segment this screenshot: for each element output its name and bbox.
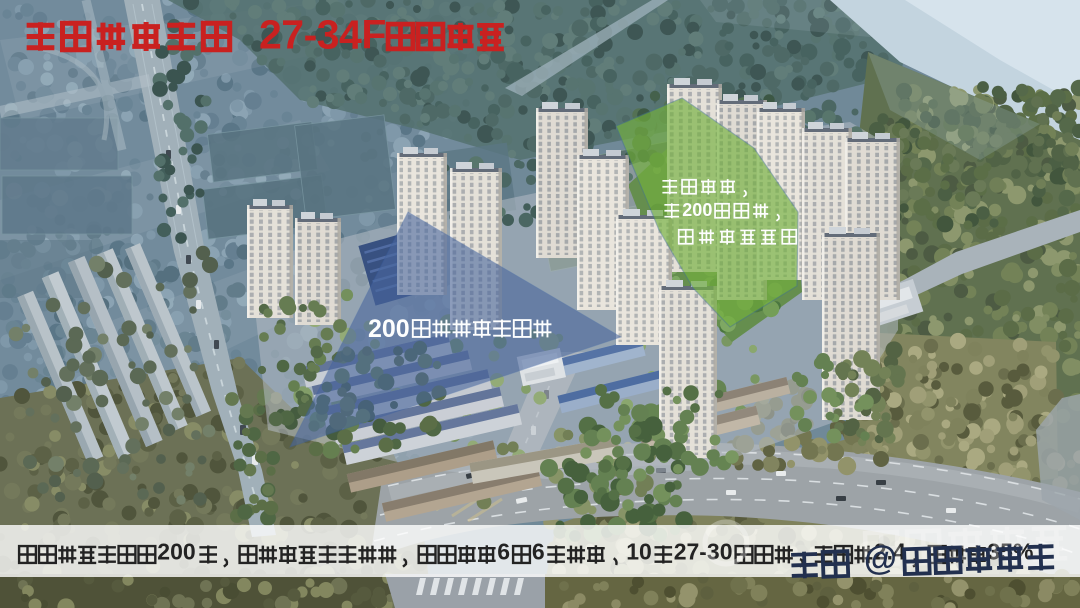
svg-text:@: @ (863, 539, 897, 578)
svg-text:10: 10 (626, 539, 652, 565)
svg-text:6: 6 (497, 539, 510, 565)
svg-text:6: 6 (532, 539, 545, 565)
svg-text:200: 200 (157, 539, 195, 565)
svg-text:27-34F: 27-34F (259, 12, 386, 58)
